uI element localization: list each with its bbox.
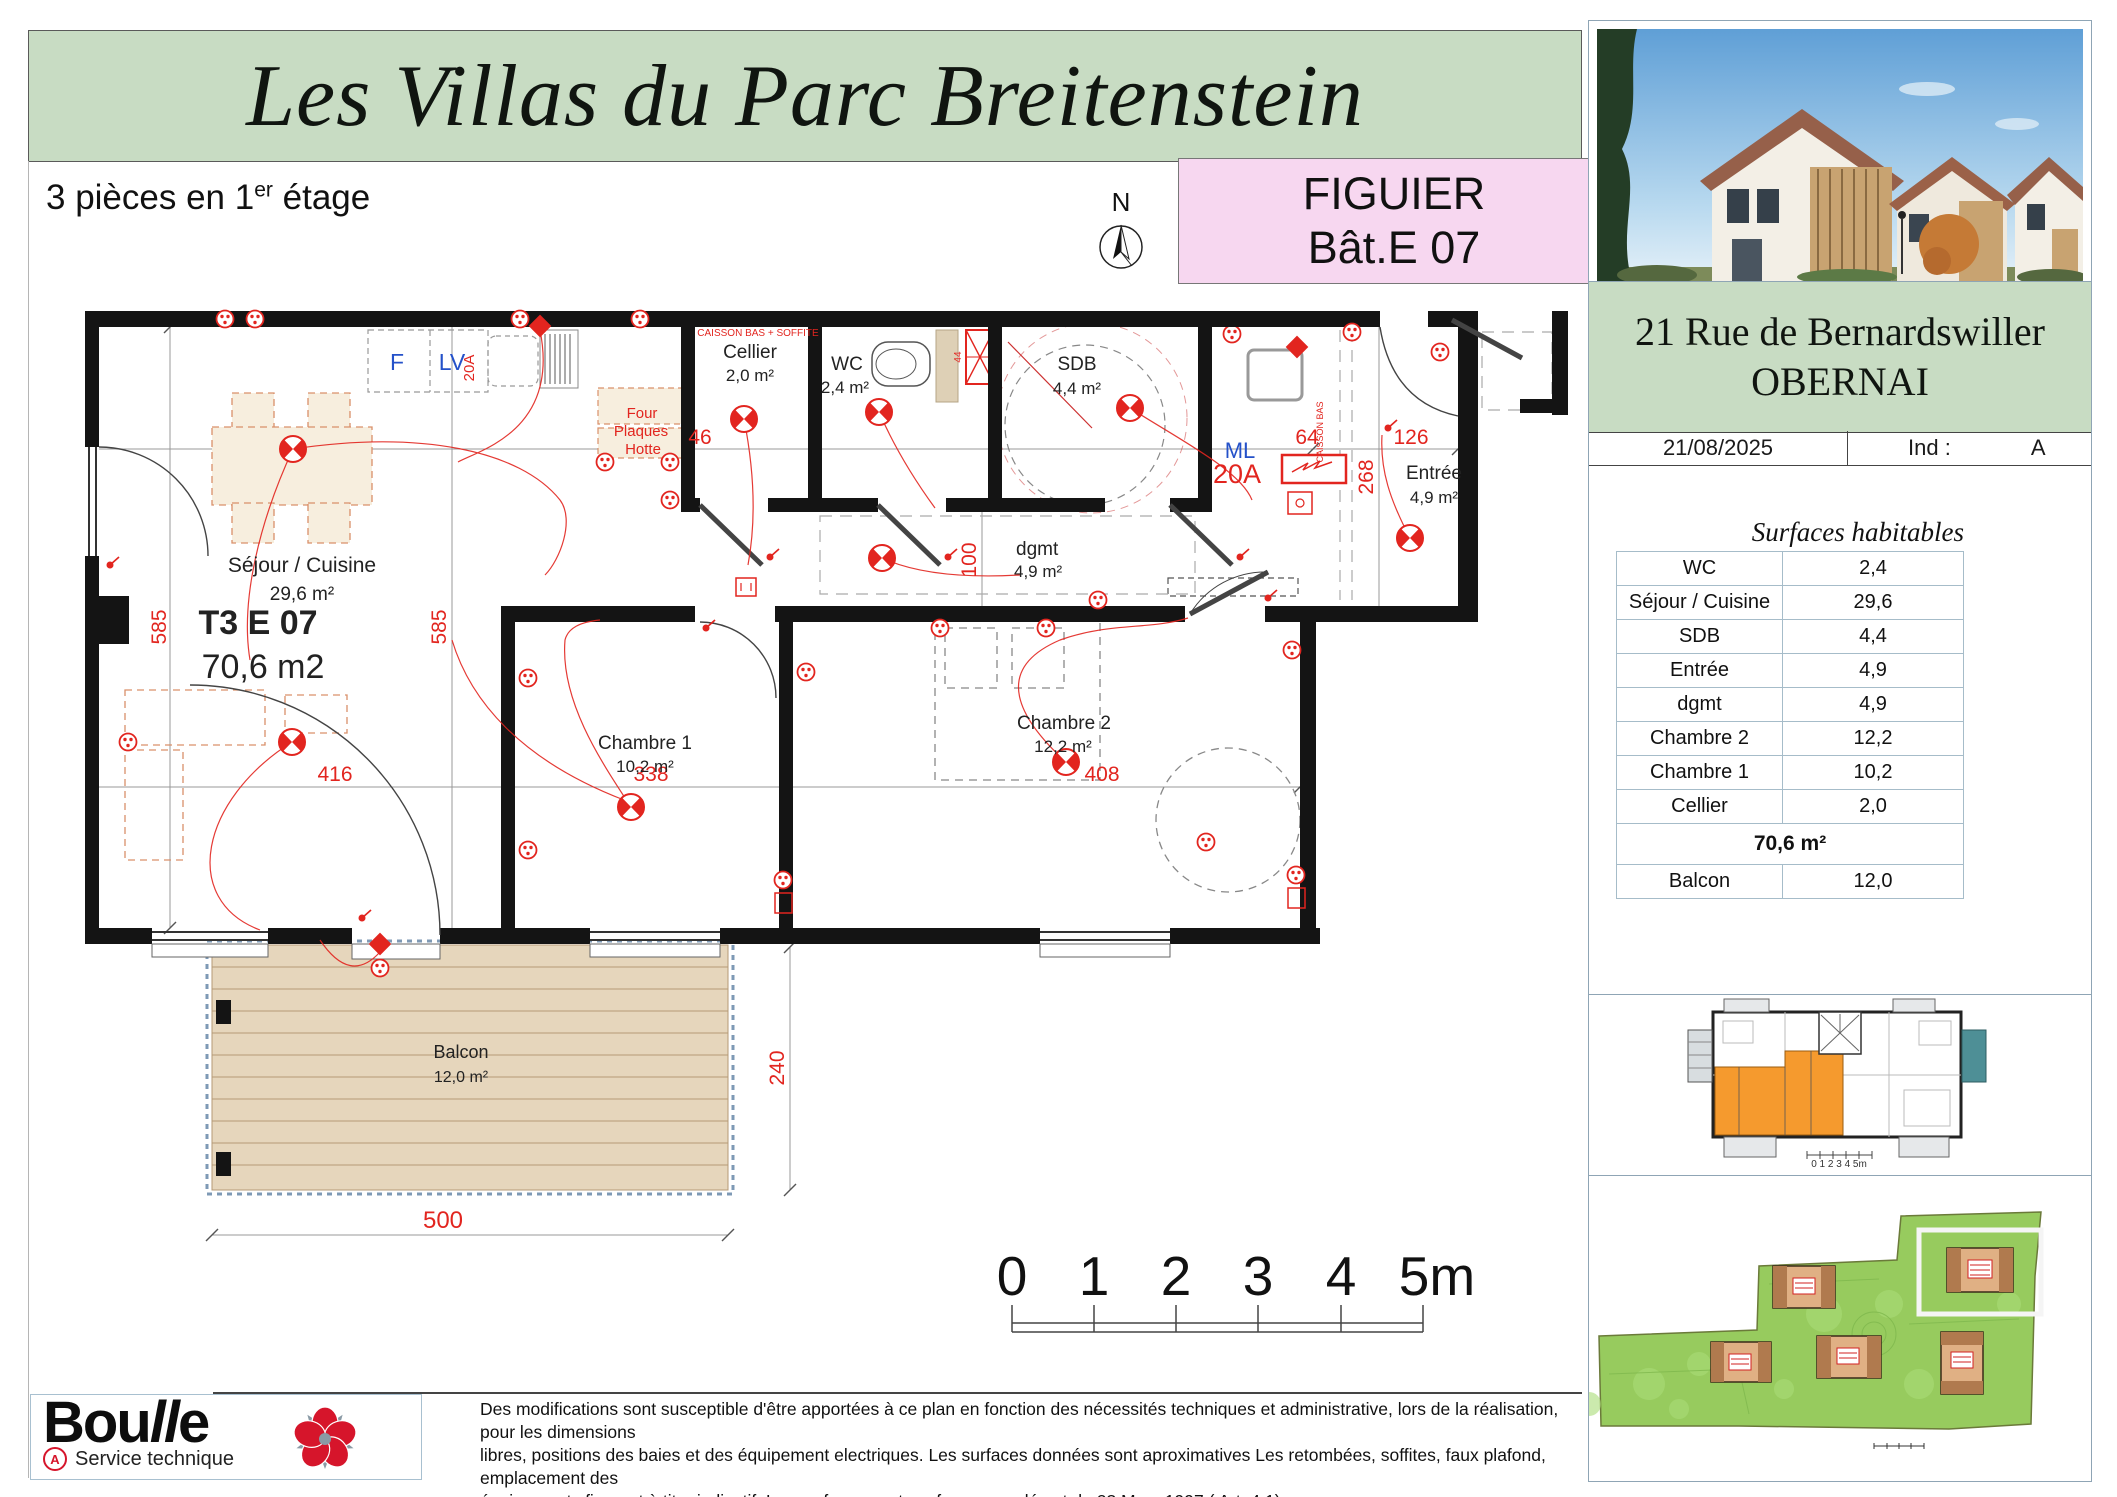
floor-plan-sheet: Les Villas du Parc Breitenstein 3 pièces… bbox=[0, 0, 2117, 1497]
room-wc-name: WC bbox=[831, 354, 863, 375]
room-sdb-name: SDB bbox=[1057, 354, 1096, 375]
index-value: A bbox=[2031, 435, 2046, 461]
subtitle-sup: er bbox=[254, 178, 273, 201]
surface-label: Cellier bbox=[1617, 790, 1783, 824]
table-row: Chambre 110,2 bbox=[1617, 756, 1964, 790]
apartment-type-subtitle: 3 pièces en 1er étage bbox=[46, 178, 370, 218]
site-building bbox=[1941, 1332, 1983, 1394]
room-chambre2-name: Chambre 2 bbox=[1017, 713, 1111, 734]
surface-value: 2,0 bbox=[1783, 790, 1964, 824]
surface-label: dgmt bbox=[1617, 688, 1783, 722]
surface-value: 2,4 bbox=[1783, 552, 1964, 586]
disclaimer-text: Des modifications sont susceptible d'êtr… bbox=[480, 1398, 1590, 1497]
scale-5m: 5m bbox=[1399, 1245, 1475, 1307]
surface-label: Chambre 1 bbox=[1617, 756, 1783, 790]
unit-area: 70,6 m2 bbox=[202, 648, 325, 686]
building-key-plan: 0 1 2 3 4 5m bbox=[1589, 994, 2091, 1176]
dim-408: 408 bbox=[1084, 763, 1119, 786]
dim-240: 240 bbox=[766, 1050, 789, 1085]
room-cellier-name: Cellier bbox=[723, 342, 778, 363]
disclaimer-line2: libres, positions des baies et des équip… bbox=[480, 1444, 1590, 1490]
wc-toilet bbox=[872, 330, 958, 402]
table-total-row: 70,6 m² bbox=[1617, 824, 1964, 865]
surface-value: 29,6 bbox=[1783, 586, 1964, 620]
table-row: Séjour / Cuisine29,6 bbox=[1617, 586, 1964, 620]
keyplan-scale-label: 0 1 2 3 4 5m bbox=[1811, 1159, 1867, 1170]
electrical-panel bbox=[1282, 455, 1346, 514]
room-dgmt-area: 4,9 m² bbox=[1014, 562, 1063, 581]
site-building bbox=[1711, 1342, 1771, 1382]
room-balcon-name: Balcon bbox=[433, 1042, 488, 1062]
table-row: WC2,4 bbox=[1617, 552, 1964, 586]
dim-268: 268 bbox=[1355, 459, 1378, 494]
service-technique-label: Service technique bbox=[75, 1448, 234, 1471]
rose-logo-icon bbox=[289, 1401, 361, 1473]
chambre2-bed bbox=[935, 620, 1300, 892]
site-plan bbox=[1589, 1174, 2091, 1481]
table-row: Cellier2,0 bbox=[1617, 790, 1964, 824]
room-entree-name: Entrée bbox=[1406, 463, 1462, 484]
dim-46: 46 bbox=[688, 426, 711, 449]
dim-416: 416 bbox=[317, 763, 352, 786]
building-photo bbox=[1597, 29, 2083, 281]
scale-2: 2 bbox=[1161, 1245, 1192, 1307]
room-sdb-area: 4,4 m² bbox=[1053, 379, 1102, 398]
table-balcon-row: Balcon12,0 bbox=[1617, 865, 1964, 899]
north-compass: N bbox=[1085, 183, 1165, 283]
room-chambre1-name: Chambre 1 bbox=[598, 733, 692, 754]
balcony-deck bbox=[207, 941, 733, 1194]
brand-part3: e bbox=[178, 1390, 208, 1455]
unit-badge: FIGUIER Bât.E 07 bbox=[1178, 158, 1610, 284]
room-sejour-area: 29,6 m² bbox=[270, 584, 334, 605]
washing-machine bbox=[1224, 326, 1309, 401]
sofa bbox=[125, 690, 347, 860]
sidebar: 21 Rue de Bernardswiller OBERNAI 21/08/2… bbox=[1588, 20, 2092, 1482]
page-frame-line bbox=[28, 161, 29, 1478]
site-building bbox=[1773, 1266, 1835, 1308]
room-balcon-area: 12,0 m² bbox=[434, 1069, 489, 1086]
frigo-label: F bbox=[390, 349, 404, 375]
subtitle-suffix: étage bbox=[273, 178, 370, 217]
table-row: SDB4,4 bbox=[1617, 620, 1964, 654]
dim-126: 126 bbox=[1393, 426, 1428, 449]
unit-badge-name: FIGUIER bbox=[1303, 167, 1486, 221]
machine-laver-label: ML bbox=[1225, 438, 1256, 463]
site-building bbox=[1817, 1336, 1881, 1378]
site-scale bbox=[1874, 1443, 1924, 1449]
scale-4: 4 bbox=[1326, 1245, 1357, 1307]
scale-3: 3 bbox=[1243, 1245, 1274, 1307]
surfaces-table: WC2,4 Séjour / Cuisine29,6 SDB4,4 Entrée… bbox=[1616, 551, 1964, 899]
circled-a-mark: A bbox=[43, 1447, 67, 1471]
surfaces-title: Surfaces habitables bbox=[1589, 517, 1964, 548]
dim-585-mid: 585 bbox=[428, 609, 451, 644]
amp-ml-label: 20A bbox=[1213, 459, 1261, 489]
shaft-label: 44 bbox=[953, 351, 964, 363]
surface-value: 12,2 bbox=[1783, 722, 1964, 756]
subtitle-prefix: 3 pièces en 1 bbox=[46, 178, 254, 217]
disclaimer-line3: équipements figurent à titre indicatif. … bbox=[480, 1490, 1590, 1497]
caisson-label: CAISSON BAS + SOFFITE bbox=[697, 328, 819, 339]
technical-shaft: 44 bbox=[953, 330, 994, 384]
room-wc-area: 2,4 m² bbox=[821, 378, 870, 397]
scale-bar: 0 1 2 3 4 5m bbox=[985, 1240, 1485, 1350]
brand-part1: Bou bbox=[43, 1390, 150, 1455]
title-banner: Les Villas du Parc Breitenstein bbox=[28, 30, 1582, 162]
room-dgmt-name: dgmt bbox=[1016, 539, 1059, 560]
dim-500: 500 bbox=[423, 1207, 463, 1234]
plan-date: 21/08/2025 bbox=[1589, 431, 1848, 465]
compass-needle-dark bbox=[1113, 225, 1121, 259]
project-title: Les Villas du Parc Breitenstein bbox=[246, 46, 1364, 147]
brand-part2: ll bbox=[150, 1390, 178, 1455]
surface-value: 10,2 bbox=[1783, 756, 1964, 790]
balcon-label: Balcon bbox=[1617, 865, 1783, 899]
surface-value: 4,4 bbox=[1783, 620, 1964, 654]
surface-value: 4,9 bbox=[1783, 654, 1964, 688]
plaques-label: Plaques bbox=[614, 423, 668, 440]
table-row: Chambre 212,2 bbox=[1617, 722, 1964, 756]
table-row: dgmt4,9 bbox=[1617, 688, 1964, 722]
surface-total: 70,6 m² bbox=[1617, 824, 1964, 865]
surface-label: Séjour / Cuisine bbox=[1617, 586, 1783, 620]
company-logo-box: Boulle A Service technique bbox=[30, 1394, 422, 1480]
table-row: Entrée4,9 bbox=[1617, 654, 1964, 688]
room-cellier-area: 2,0 m² bbox=[726, 366, 775, 385]
room-chambre1-area: 10,2 m² bbox=[616, 757, 674, 776]
hotte-label: Hotte bbox=[625, 441, 661, 458]
compass-n-label: N bbox=[1112, 187, 1131, 217]
surface-label: WC bbox=[1617, 552, 1783, 586]
address-block: 21 Rue de Bernardswiller OBERNAI bbox=[1589, 281, 2091, 433]
room-entree-area: 4,9 m² bbox=[1410, 488, 1459, 507]
index-label: Ind : bbox=[1908, 435, 1951, 461]
site-building-highlighted bbox=[1947, 1248, 2013, 1292]
surface-label: SDB bbox=[1617, 620, 1783, 654]
scale-1: 1 bbox=[1079, 1245, 1110, 1307]
date-row: 21/08/2025 Ind : A bbox=[1589, 431, 2091, 466]
address-line1: 21 Rue de Bernardswiller bbox=[1635, 307, 2045, 357]
dining-table bbox=[212, 393, 372, 543]
address-line2: OBERNAI bbox=[1751, 357, 1929, 407]
dim-100: 100 bbox=[958, 542, 981, 577]
disclaimer-line1: Des modifications sont susceptible d'êtr… bbox=[480, 1398, 1590, 1444]
lave-vaisselle-label: LV bbox=[439, 349, 466, 375]
dim-585-left: 585 bbox=[148, 609, 171, 644]
company-logo: Boulle bbox=[43, 1389, 208, 1456]
room-sejour-name: Séjour / Cuisine bbox=[228, 554, 376, 577]
dim-64: 64 bbox=[1295, 426, 1319, 449]
unit-code: T3 E 07 bbox=[198, 604, 317, 642]
four-label: Four bbox=[627, 405, 658, 422]
floor-plan-drawing: 44 bbox=[60, 290, 1600, 1270]
scale-0: 0 bbox=[997, 1245, 1028, 1307]
brand-subline: A Service technique bbox=[43, 1447, 234, 1471]
surface-value: 4,9 bbox=[1783, 688, 1964, 722]
surface-label: Chambre 2 bbox=[1617, 722, 1783, 756]
room-chambre2-area: 12,2 m² bbox=[1034, 737, 1092, 756]
index-cell: Ind : A bbox=[1848, 431, 2091, 465]
balcon-value: 12,0 bbox=[1783, 865, 1964, 899]
surface-label: Entrée bbox=[1617, 654, 1783, 688]
unit-badge-building: Bât.E 07 bbox=[1308, 221, 1481, 275]
scale-ticks bbox=[1012, 1305, 1423, 1332]
